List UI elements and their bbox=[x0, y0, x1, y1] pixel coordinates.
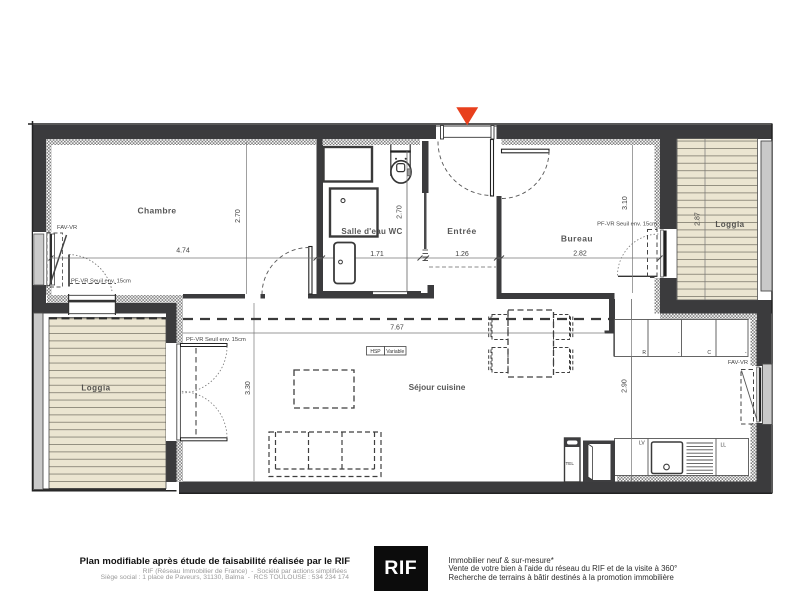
svg-text:Loggia: Loggia bbox=[715, 220, 744, 229]
svg-text:Bureau: Bureau bbox=[561, 234, 593, 244]
svg-text:3.10: 3.10 bbox=[622, 196, 629, 210]
svg-text:2.87: 2.87 bbox=[695, 212, 702, 226]
svg-text:R: R bbox=[642, 350, 646, 356]
svg-text:LV: LV bbox=[639, 441, 645, 447]
svg-text:2.90: 2.90 bbox=[622, 379, 629, 393]
svg-text:Salle d'eau WC: Salle d'eau WC bbox=[341, 227, 402, 236]
svg-text:2.82: 2.82 bbox=[573, 251, 587, 258]
svg-text:1.26: 1.26 bbox=[455, 251, 469, 258]
svg-text:3.30: 3.30 bbox=[245, 381, 252, 395]
svg-text:C: C bbox=[707, 350, 711, 356]
svg-text:Entrée: Entrée bbox=[447, 226, 476, 236]
svg-text:1.71: 1.71 bbox=[370, 251, 384, 258]
svg-text:Loggia: Loggia bbox=[81, 384, 110, 393]
svg-text:4.74: 4.74 bbox=[176, 248, 190, 255]
svg-text:LL: LL bbox=[721, 443, 727, 449]
svg-text:FAV-VR: FAV-VR bbox=[57, 225, 77, 231]
svg-text:2.70: 2.70 bbox=[397, 205, 404, 219]
svg-text:TEL: TEL bbox=[566, 461, 575, 466]
svg-text:PF-VR Seuil env. 15cm: PF-VR Seuil env. 15cm bbox=[186, 337, 246, 343]
svg-text:HSP: HSP bbox=[370, 349, 381, 355]
svg-text:PF-VR Seuil env. 15cm: PF-VR Seuil env. 15cm bbox=[597, 222, 657, 228]
svg-text:7.67: 7.67 bbox=[390, 325, 404, 332]
svg-text:FAV-VR: FAV-VR bbox=[728, 360, 748, 366]
svg-text:Chambre: Chambre bbox=[138, 206, 177, 216]
svg-text:PF-VR Seuil env. 15cm: PF-VR Seuil env. 15cm bbox=[71, 279, 131, 285]
svg-text:Variable: Variable bbox=[386, 349, 404, 355]
svg-text:2.70: 2.70 bbox=[235, 209, 242, 223]
svg-text:Séjour cuisine: Séjour cuisine bbox=[409, 382, 466, 392]
